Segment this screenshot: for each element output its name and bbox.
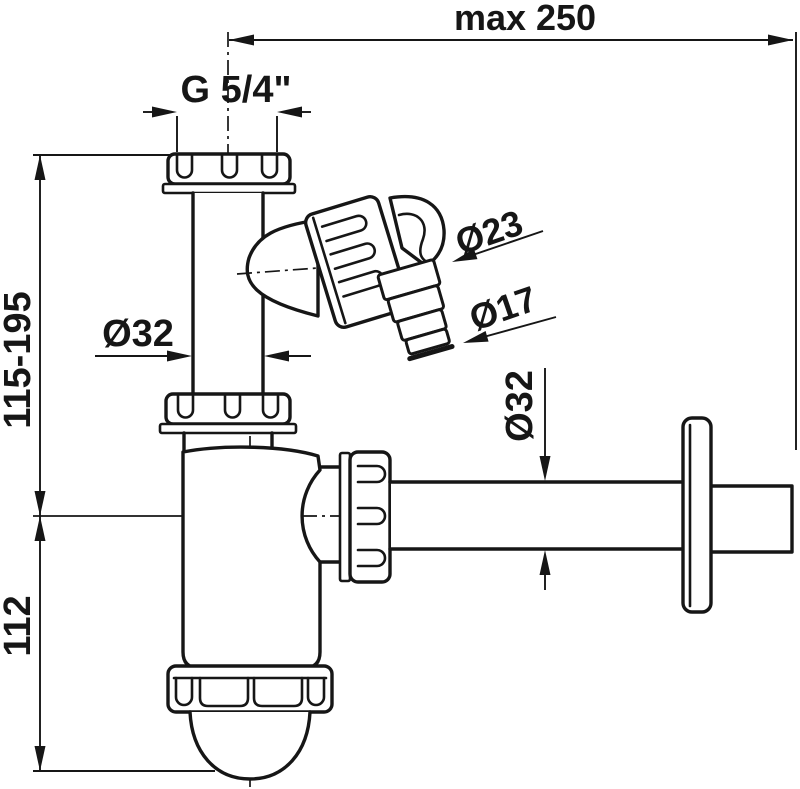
nut-flange xyxy=(163,184,295,193)
arrowhead-left xyxy=(152,107,177,118)
label-max-width: max 250 xyxy=(454,0,596,38)
compression-nut xyxy=(160,394,296,454)
label-body-height: 112 xyxy=(0,595,39,656)
label-outlet-diameter: Ø32 xyxy=(499,370,541,442)
label-thread-size: G 5/4" xyxy=(181,69,292,111)
outlet-pipe xyxy=(390,482,792,552)
arrowhead-bottom xyxy=(540,550,551,575)
siphon-technical-drawing: max 250 G 5/4" 115-195 112 Ø32 xyxy=(0,0,800,789)
nut-body xyxy=(168,154,290,184)
label-height-range: 115-195 xyxy=(0,291,39,428)
pipe-fill-left xyxy=(391,483,683,548)
arrowhead-left xyxy=(229,35,254,46)
arrowhead-bottom xyxy=(35,491,46,516)
trap-cup xyxy=(183,447,341,668)
nut-flange xyxy=(160,424,296,433)
leader-nozzle-small: Ø17 xyxy=(462,278,556,349)
outlet-union-nut xyxy=(340,452,390,582)
hose-nozzle-barb xyxy=(378,259,458,361)
wall-flange xyxy=(683,418,711,612)
cleaning-nut xyxy=(168,666,332,712)
arrowhead-top xyxy=(35,516,46,541)
pipe-fill-right xyxy=(711,487,792,551)
pipe-fill xyxy=(194,193,262,394)
arrowhead-right xyxy=(264,351,289,362)
flange-body xyxy=(683,418,711,612)
label-nozzle-tip-diameter: Ø17 xyxy=(464,278,542,339)
trap-dome xyxy=(190,712,310,779)
cup-outline xyxy=(183,447,320,668)
outlet-stub xyxy=(320,467,341,562)
dimension-thread: G 5/4" xyxy=(143,69,311,152)
arrowhead-bottom xyxy=(35,746,46,771)
technical-drawing-canvas: max 250 G 5/4" 115-195 112 Ø32 xyxy=(0,0,800,789)
arrowhead-top xyxy=(540,456,551,481)
arrowhead-top xyxy=(35,155,46,180)
inlet-pipe xyxy=(193,193,263,394)
dimension-outlet-diameter: Ø32 xyxy=(499,368,551,590)
leader-nozzle-large: Ø23 xyxy=(450,202,543,267)
top-union-nut xyxy=(163,154,295,193)
label-inlet-diameter: Ø32 xyxy=(102,313,174,355)
hose-nozzle xyxy=(237,194,458,360)
label-nozzle-outer-diameter: Ø23 xyxy=(450,202,528,263)
nut-body xyxy=(166,394,290,424)
arrowhead-right xyxy=(768,35,793,46)
extension-lines xyxy=(177,116,277,152)
nozzle-reducer xyxy=(390,197,444,266)
